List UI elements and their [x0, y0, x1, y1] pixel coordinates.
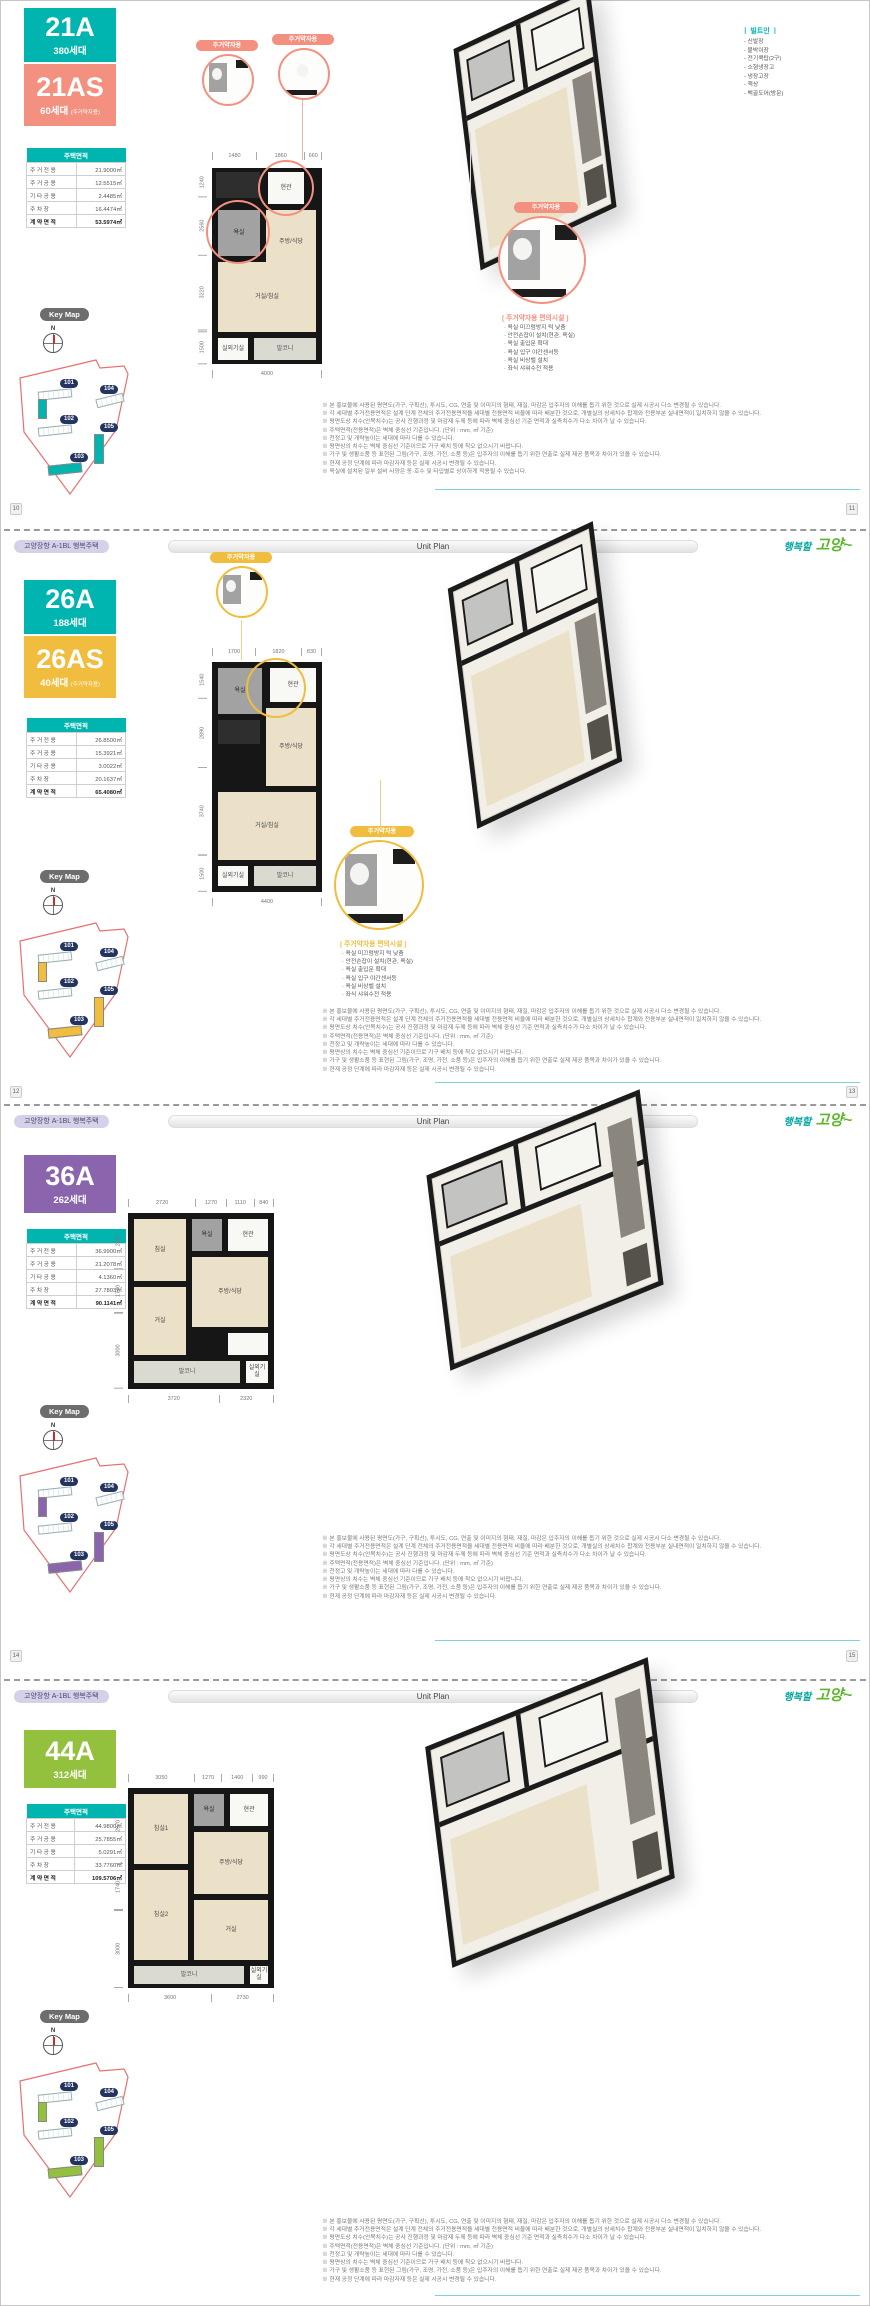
table-row-total: 계약면적90.1141㎡	[27, 1296, 126, 1309]
note-line: ※ 욕실에 설치된 일부 설비 사양은 동·호수 및 타입별로 상이하게 적용될…	[322, 468, 860, 476]
table-row: 기타공용3.0022㎡	[27, 759, 126, 772]
3d-wall	[514, 561, 527, 632]
footer-rule	[435, 489, 860, 490]
footer-rule	[435, 1640, 860, 1641]
building-number: 101	[60, 379, 78, 388]
building-number: 101	[60, 2082, 78, 2091]
note-line: ※ 주택면적(전용면적)은 벽체 중심선 기준입니다. (단위 : mm, ㎡ …	[322, 2243, 860, 2251]
barrier-free-title: [ 주거약자용 편의시설 ]	[340, 938, 406, 948]
plan-dimensions-top: 2720 1270 1110 840	[128, 1199, 274, 1207]
3d-fridge	[623, 1243, 652, 1286]
room-utility	[228, 1333, 268, 1355]
building-block-highlight	[38, 2102, 47, 2122]
building-number: 104	[100, 948, 118, 957]
table-row: 주거전용26.8500㎡	[27, 733, 126, 746]
callout-detail	[350, 863, 369, 885]
room-kitchen: 주방/식당	[192, 1257, 268, 1327]
room-living: 거실	[134, 1287, 186, 1355]
table-row: 주거공용12.5515㎡	[27, 176, 126, 189]
note-line: ※ 평면상의 치수는 벽체 중심선 기준이므로 가구 배치 등에 착오 없으시기…	[322, 1049, 860, 1057]
room-outdoor-unit: 실외기실	[250, 1966, 268, 1984]
note-line: ※ 본 홍보물에 사용된 평면도(가구, 구획선), 투시도, CG, 연출 및…	[322, 1535, 860, 1543]
note-line: ※ 평면상의 치수는 벽체 중심선 기준이므로 가구 배치 등에 착오 없으시기…	[322, 1576, 860, 1584]
note-line: ※ 현재 공정 단계에 따라 마감자재 등은 실제 시공시 변경될 수 있습니다…	[322, 460, 860, 468]
floorplan-2d: 침실1 욕실 현관 주방/식당 거실 침실2 발코니 실외기실	[128, 1788, 274, 1988]
3d-kitchen-cabinet	[614, 1688, 655, 1825]
room-kitchen: 주방/식당	[194, 1832, 268, 1894]
legend-item: 신발장	[744, 38, 783, 47]
iso-floorplan-3d	[448, 521, 622, 829]
note-line: ※ 천정고 및 개략높이는 세대에 따라 다를 수 있습니다.	[322, 435, 860, 443]
iso-floorplan-3d	[425, 1657, 675, 1968]
floorplan-2d: 침실 욕실 현관 주방/식당 거실 발코니 실외기실	[128, 1213, 274, 1389]
note-line: ※ 본 홍보물에 사용된 평면도(가구, 구획선), 투시도, CG, 연출 및…	[322, 2218, 860, 2226]
3d-kitchen-cabinet	[575, 613, 607, 714]
barrier-free-item: 욕실 출입문 확대	[504, 340, 575, 348]
plan-dimensions-bottom: 4000	[212, 370, 322, 378]
room-storage	[216, 172, 260, 198]
building-block-highlight	[38, 1497, 47, 1517]
callout-detail	[297, 64, 308, 76]
room-entrance: 현관	[228, 1219, 268, 1251]
table-row: 주거공용15.3921㎡	[27, 746, 126, 759]
disclaimer-notes: ※ 본 홍보물에 사용된 평면도(가구, 구획선), 투시도, CG, 연출 및…	[322, 1008, 860, 1074]
unit-count: 262세대	[53, 1195, 86, 1206]
note-line: ※ 현재 공정 단계에 따라 마감자재 등은 실제 시공시 변경될 수 있습니다…	[322, 1066, 860, 1074]
barrier-free-list: 욕실 미끄럼방지 턱 낮춤 안전손잡이 설치(현관, 욕실) 욕실 출입문 확대…	[342, 950, 413, 999]
building-number: 102	[60, 2118, 78, 2127]
building-number: 103	[70, 453, 88, 462]
building-number: 101	[60, 1477, 78, 1486]
room-outdoor-unit: 실외기실	[246, 1361, 268, 1383]
callout-detail	[236, 60, 248, 69]
note-line: ※ 주택면적(전용면적)은 벽체 중심선 기준입니다. (단위 : mm, ㎡ …	[322, 1560, 860, 1568]
barrier-free-callout-pill: 주거약자용	[196, 40, 258, 51]
page-number-left: 12	[10, 1086, 22, 1098]
barrier-free-item: 욕실 비상벨 설치	[504, 357, 575, 365]
unit-count-note: (주거약자용)	[71, 682, 100, 688]
area-table: 주택면적 주거전용36.9900㎡ 주거공용21.2078㎡ 기타공용4.136…	[26, 1229, 126, 1309]
table-row: 기타공용5.0291㎡	[27, 1845, 126, 1858]
building-number: 104	[100, 385, 118, 394]
project-title-pill: 고양장항 A-1BL 행복주택	[14, 1115, 109, 1128]
3d-fridge	[583, 163, 606, 206]
note-line: ※ 각 세대별 주거전용면적은 설계 단계 전체의 주거전용면적을 세대별 전용…	[322, 1016, 860, 1024]
plan-dimensions-top: 1480 1860 660	[212, 152, 322, 160]
note-line: ※ 각 세대별 주거전용면적은 설계 단계 전체의 주거전용면적을 세대별 전용…	[322, 1543, 860, 1551]
unit-type-code: 26AS	[24, 645, 116, 673]
table-row-total: 계약면적109.5706㎡	[27, 1871, 126, 1884]
3d-bathroom	[461, 579, 513, 646]
brand-logo: 행복할 고양~	[784, 1109, 852, 1130]
keymap-label: Key Map	[40, 870, 89, 883]
table-row: 주차장20.1637㎡	[27, 772, 126, 785]
keymap-label: Key Map	[40, 1405, 89, 1418]
callout-detail	[343, 914, 403, 923]
building-number: 104	[100, 2088, 118, 2097]
building-number: 105	[100, 423, 118, 432]
table-row: 기타공용4.1360㎡	[27, 1270, 126, 1283]
plan-dimensions-bottom: 4400	[212, 898, 322, 906]
table-row: 기타공용2.4485㎡	[27, 189, 126, 202]
keymap-siteplan: 101 104 102 105 103	[8, 2055, 136, 2205]
plan-dimensions-bottom: 3720 2320	[128, 1395, 274, 1403]
plan-dimensions-left: 2970 1740 3000	[114, 1788, 123, 1988]
table-row: 주차장27.7803㎡	[27, 1283, 126, 1296]
barrier-free-callout-pill: 주거약자용	[210, 552, 272, 563]
building-number: 104	[100, 1483, 118, 1492]
unit-count: 380세대	[53, 46, 86, 57]
barrier-free-callout-circle	[334, 840, 424, 930]
builtin-legend-title: ㅣ 빌트인 ㅣ	[742, 26, 778, 36]
keymap-siteplan: 101 104 102 105 103	[8, 915, 136, 1065]
note-line: ※ 각 세대별 주거전용면적은 설계 단계 전체의 주거전용면적을 세대별 전용…	[322, 410, 860, 418]
legend-item: 전기쿡탑(2구)	[744, 55, 783, 64]
unit-count: 40세대	[40, 678, 68, 689]
3d-fridge	[587, 714, 612, 760]
building-block-highlight	[94, 1532, 104, 1562]
area-table: 주택면적 주거전용26.8500㎡ 주거공용15.3921㎡ 기타공용3.002…	[26, 718, 126, 798]
plan-dimensions-top: 1700 1820 830	[212, 648, 322, 656]
note-line: ※ 가구 및 생활소품 등 표현된 그림(가구, 조명, 가전, 소품 등)은 …	[322, 1584, 860, 1592]
footer-rule	[435, 1082, 860, 1083]
page-number-left: 14	[10, 1650, 22, 1662]
table-row: 주거공용21.2078㎡	[27, 1257, 126, 1270]
footer-rule	[435, 2295, 860, 2296]
room-balcony: 발코니	[254, 338, 316, 360]
table-row: 주차장33.7760㎡	[27, 1858, 126, 1871]
unit-type-badge-26a: 26A 188세대	[24, 580, 116, 634]
building-number: 102	[60, 415, 78, 424]
compass-icon: N	[42, 2028, 64, 2055]
room-storage	[218, 720, 260, 744]
north-label: N	[42, 888, 64, 894]
note-line: ※ 천정고 및 개략높이는 세대에 따라 다를 수 있습니다.	[322, 1568, 860, 1576]
barrier-free-callout-pill: 주거약자용	[514, 202, 578, 213]
note-line: ※ 천정고 및 개략높이는 세대에 따라 다를 수 있습니다.	[322, 2251, 860, 2259]
building-number: 103	[70, 1016, 88, 1025]
highlight-ring	[206, 200, 270, 264]
legend-item: 냉장고장	[744, 73, 783, 82]
table-row: 주거전용44.9800㎡	[27, 1819, 126, 1832]
spread-26: 고양장항 A-1BL 행복주택 Unit Plan 행복할 고양~ 26A 18…	[0, 530, 870, 1105]
room-balcony: 발코니	[134, 1361, 240, 1383]
area-table-title: 주택면적	[27, 1229, 126, 1244]
note-line: ※ 가구 및 생활소품 등 표현된 그림(가구, 조명, 가전, 소품 등)은 …	[322, 451, 860, 459]
building-number: 101	[60, 942, 78, 951]
3d-wall	[516, 1714, 529, 1787]
area-table: 주택면적 주거전용44.9800㎡ 주거공용25.7855㎡ 기타공용5.029…	[26, 1804, 126, 1884]
3d-wall	[513, 1144, 525, 1209]
unit-count: 312세대	[53, 1770, 86, 1781]
building-block-highlight	[94, 2137, 104, 2167]
spread-44: 고양장항 A-1BL 행복주택 Unit Plan 행복할 고양~ 44A 31…	[0, 1680, 870, 2306]
unit-type-badge-36a: 36A 262세대	[24, 1155, 116, 1213]
keymap-label: Key Map	[40, 308, 89, 321]
barrier-free-callout-circle	[202, 54, 254, 106]
barrier-free-item: 좌식 샤워수전 적용	[504, 365, 575, 373]
builtin-legend-list: 신발장 붙박이장 전기쿡탑(2구) 소형냉장고 냉장고장 책상 백골도어(방문)	[744, 38, 783, 99]
3d-entrance	[530, 544, 587, 614]
unit-type-badge-44a: 44A 312세대	[24, 1730, 116, 1788]
page-number-right: 13	[846, 1086, 858, 1098]
note-line: ※ 주택면적(전용면적)은 벽체 중심선 기준입니다. (단위 : mm, ㎡ …	[322, 427, 860, 435]
note-line: ※ 본 홍보물에 사용된 평면도(가구, 구획선), 투시도, CG, 연출 및…	[322, 402, 860, 410]
spread-36: 고양장항 A-1BL 행복주택 Unit Plan 행복할 고양~ 36A 26…	[0, 1105, 870, 1680]
compass-icon: N	[42, 888, 64, 915]
note-line: ※ 가구 및 생활소품 등 표현된 그림(가구, 조명, 가전, 소품 등)은 …	[322, 1057, 860, 1065]
building-number: 102	[60, 978, 78, 987]
unit-type-code: 44A	[24, 1737, 116, 1765]
building-number: 103	[70, 1551, 88, 1560]
keymap-siteplan: 101 104 102 105 103	[8, 1450, 136, 1600]
callout-detail	[507, 289, 566, 297]
barrier-free-item: 안전손잡이 설치(현관, 욕실)	[504, 332, 575, 340]
3d-living-floor	[450, 1204, 592, 1349]
disclaimer-notes: ※ 본 홍보물에 사용된 평면도(가구, 구획선), 투시도, CG, 연출 및…	[322, 2218, 860, 2284]
keymap-siteplan: 101 104 102 105 103	[8, 352, 136, 502]
note-line: ※ 천정고 및 개략높이는 세대에 따라 다를 수 있습니다.	[322, 1041, 860, 1049]
callout-detail	[250, 572, 262, 581]
barrier-free-callout-circle	[498, 216, 586, 304]
brochure-scan: 21A 380세대 21AS 60세대 (주거약자용) 주택면적 주거전용21.…	[0, 0, 870, 2306]
callout-leader-line	[241, 620, 242, 660]
room-living: 거실/침실	[218, 792, 316, 860]
building-number: 103	[70, 2156, 88, 2165]
plan-dimensions-left: 1540 2890 3740 1500	[198, 662, 207, 892]
barrier-free-callout-circle	[278, 48, 330, 100]
callout-detail	[212, 68, 223, 80]
building-block-highlight	[94, 434, 104, 464]
note-line: ※ 본 홍보물에 사용된 평면도(가구, 구획선), 투시도, CG, 연출 및…	[322, 1008, 860, 1016]
unit-type-code: 21AS	[24, 73, 116, 101]
room-bedroom-2: 침실2	[134, 1870, 188, 1960]
barrier-free-callout-circle	[216, 566, 268, 618]
brand-logo: 행복할 고양~	[784, 1684, 852, 1705]
table-row: 주거전용21.9000㎡	[27, 163, 126, 176]
plan-dimensions-left: 2240 1740 3000	[114, 1213, 123, 1389]
spread-21: 21A 380세대 21AS 60세대 (주거약자용) 주택면적 주거전용21.…	[0, 0, 870, 530]
room-bedroom-1: 침실1	[134, 1794, 188, 1864]
unit-type-badge-21a: 21A 380세대	[24, 8, 116, 62]
area-table-title: 주택면적	[27, 718, 126, 733]
north-label: N	[42, 326, 64, 332]
barrier-free-item: 욕실 미끄럼방지 턱 낮춤	[342, 950, 413, 958]
3d-fridge	[632, 1831, 662, 1879]
callout-detail	[513, 238, 531, 260]
legend-item: 붙박이장	[744, 47, 783, 56]
room-bathroom: 욕실	[192, 1219, 222, 1251]
disclaimer-notes: ※ 본 홍보물에 사용된 평면도(가구, 구획선), 투시도, CG, 연출 및…	[322, 1535, 860, 1601]
compass-icon: N	[42, 1423, 64, 1450]
unit-count: 60세대	[40, 106, 68, 117]
note-line: ※ 평면도상 치수(안목치수)는 공사 진행과정 및 마감재 두께 등에 따라 …	[322, 2234, 860, 2242]
note-line: ※ 현재 공정 단계에 따라 마감자재 등은 실제 시공시 변경될 수 있습니다…	[322, 1593, 860, 1601]
plan-dimensions-bottom: 3600 2730	[128, 1994, 274, 2002]
disclaimer-notes: ※ 본 홍보물에 사용된 평면도(가구, 구획선), 투시도, CG, 연출 및…	[322, 402, 860, 476]
table-row: 주거전용36.9900㎡	[27, 1244, 126, 1257]
3d-kitchen-cabinet	[607, 1117, 645, 1238]
table-row: 주거공용25.7855㎡	[27, 1832, 126, 1845]
legend-item: 소형냉장고	[744, 64, 783, 73]
building-block-highlight	[94, 997, 104, 1027]
unit-type-badge-26as: 26AS 40세대 (주거약자용)	[24, 636, 116, 698]
table-row: 주차장16.4474㎡	[27, 202, 126, 215]
table-row-total: 계약면적65.4080㎡	[27, 785, 126, 798]
unit-type-badge-21as: 21AS 60세대 (주거약자용)	[24, 64, 116, 126]
note-line: ※ 가구 및 생활소품 등 표현된 그림(가구, 조명, 가전, 소품 등)은 …	[322, 2267, 860, 2275]
iso-floorplan-3d	[426, 1089, 663, 1370]
note-line: ※ 평면도상 치수(안목치수)는 공사 진행과정 및 마감재 두께 등에 따라 …	[322, 418, 860, 426]
page-number-left: 10	[10, 503, 22, 515]
note-line: ※ 평면도상 치수(안목치수)는 공사 진행과정 및 마감재 두께 등에 따라 …	[322, 1551, 860, 1559]
barrier-free-item: 욕실 입구 야간센서등	[342, 975, 413, 983]
table-row-total: 계약면적53.5974㎡	[27, 215, 126, 228]
page-number-right: 15	[846, 1650, 858, 1662]
barrier-free-callout-pill: 주거약자용	[350, 826, 414, 837]
highlight-ring	[258, 160, 314, 216]
note-line: ※ 평면상의 치수는 벽체 중심선 기준이므로 가구 배치 등에 착오 없으시기…	[322, 2259, 860, 2267]
project-title-pill: 고양장항 A-1BL 행복주택	[14, 1690, 109, 1703]
room-outdoor-unit: 실외기실	[218, 338, 248, 360]
room-living: 거실	[194, 1900, 268, 1960]
building-block-highlight	[38, 399, 47, 419]
unit-count-note: (주거약자용)	[71, 110, 100, 116]
project-title-pill: 고양장항 A-1BL 행복주택	[14, 540, 109, 553]
3d-bathroom	[466, 40, 514, 102]
brand-logo: 행복할 고양~	[784, 534, 852, 555]
room-living: 거실/침실	[218, 262, 316, 332]
callout-detail	[393, 849, 415, 864]
note-line: ※ 평면도상 치수(안목치수)는 공사 진행과정 및 마감재 두께 등에 따라 …	[322, 1024, 860, 1032]
north-label: N	[42, 1423, 64, 1429]
unit-count: 188세대	[53, 618, 86, 629]
compass-icon: N	[42, 326, 64, 353]
legend-item: 백골도어(방문)	[744, 90, 783, 99]
3d-entrance	[531, 7, 584, 72]
barrier-free-item: 욕실 출입문 확대	[342, 966, 413, 974]
building-number: 105	[100, 986, 118, 995]
barrier-free-callout-pill: 주거약자용	[272, 34, 334, 45]
3d-wall	[516, 23, 528, 88]
area-table: 주택면적 주거전용21.9000㎡ 주거공용12.5515㎡ 기타공용2.448…	[26, 148, 126, 228]
building-number: 105	[100, 2126, 118, 2135]
barrier-free-item: 욕실 비상벨 설치	[342, 983, 413, 991]
barrier-free-item: 욕실 입구 야간센서등	[504, 349, 575, 357]
note-line: ※ 현재 공정 단계에 따라 마감자재 등은 실제 시공시 변경될 수 있습니다…	[322, 2276, 860, 2284]
room-balcony: 발코니	[134, 1966, 244, 1984]
barrier-free-title: [ 주거약자용 편의시설 ]	[502, 312, 568, 322]
plan-dimensions-left: 1240 2560 3220 1500	[198, 168, 207, 364]
callout-detail	[284, 90, 318, 95]
building-number: 102	[60, 1513, 78, 1522]
unit-type-code: 36A	[24, 1162, 116, 1190]
3d-living-floor	[470, 630, 584, 807]
room-kitchen: 주방/식당	[266, 708, 316, 786]
keymap-label: Key Map	[40, 2010, 89, 2023]
unit-type-code: 21A	[24, 13, 116, 41]
page-number-right: 11	[846, 503, 858, 515]
north-label: N	[42, 2028, 64, 2034]
callout-detail	[226, 580, 237, 592]
room-bathroom: 욕실	[194, 1794, 224, 1826]
barrier-free-item: 욕실 미끄럼방지 턱 낮춤	[504, 324, 575, 332]
note-line: ※ 평면상의 치수는 벽체 중심선 기준이므로 가구 배치 등에 착오 없으시기…	[322, 443, 860, 451]
callout-detail	[555, 225, 577, 240]
barrier-free-item: 안전손잡이 설치(현관, 욕실)	[342, 958, 413, 966]
barrier-free-list: 욕실 미끄럼방지 턱 낮춤 안전손잡이 설치(현관, 욕실) 욕실 출입문 확대…	[504, 324, 575, 373]
building-number: 105	[100, 1521, 118, 1530]
highlight-ring	[246, 658, 306, 718]
legend-item: 책상	[744, 81, 783, 90]
note-line: ※ 주택면적(전용면적)은 벽체 중심선 기준입니다. (단위 : mm, ㎡ …	[322, 1033, 860, 1041]
plan-dimensions-top: 3050 1270 1460 990	[128, 1774, 274, 1782]
note-line: ※ 각 세대별 주거전용면적은 설계 단계 전체의 주거전용면적을 세대별 전용…	[322, 2226, 860, 2234]
callout-leader-line	[470, 132, 471, 202]
unit-type-code: 26A	[24, 585, 116, 613]
room-entrance: 현관	[230, 1794, 268, 1826]
3d-kitchen-cabinet	[572, 71, 601, 164]
building-block-highlight	[38, 962, 47, 982]
room-balcony: 발코니	[254, 866, 316, 886]
area-table-title: 주택면적	[27, 148, 126, 163]
callout-leader-line	[302, 100, 303, 160]
room-bedroom: 침실	[134, 1219, 186, 1281]
barrier-free-item: 좌식 샤워수전 적용	[342, 991, 413, 999]
area-table-title: 주택면적	[27, 1804, 126, 1819]
room-outdoor-unit: 실외기실	[218, 866, 248, 886]
